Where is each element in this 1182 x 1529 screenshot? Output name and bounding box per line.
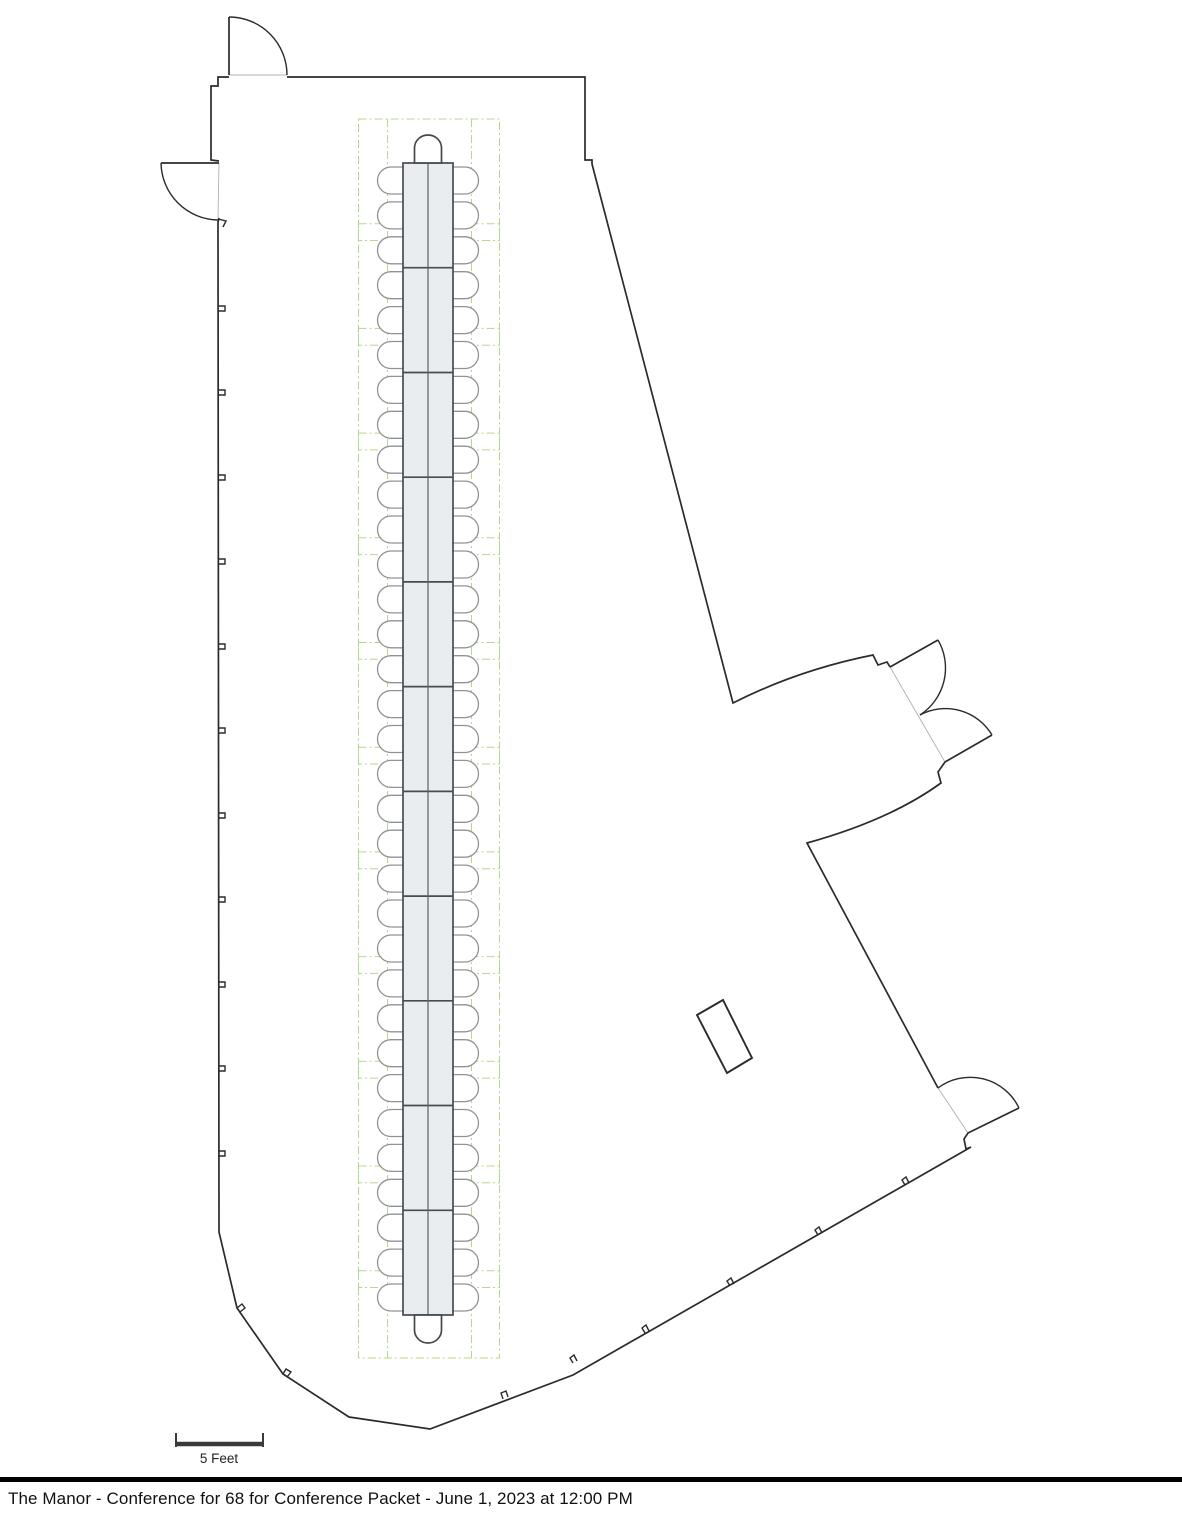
column [697, 1000, 752, 1073]
room-wall [218, 218, 971, 1429]
door-opening-line [938, 1088, 968, 1133]
door-opening-line [218, 163, 219, 218]
door-leaf [968, 1108, 1019, 1133]
door-opening-line [890, 667, 945, 762]
door-swing-arc [938, 1077, 1019, 1108]
door-leaf [945, 735, 992, 762]
wall-tick [218, 306, 225, 311]
title-bar: The Manor - Conference for 68 for Confer… [0, 1477, 1182, 1509]
door-swing-arc [920, 709, 992, 735]
wall-tick [570, 1355, 577, 1363]
column-obstruction [697, 1000, 752, 1073]
scale-bar-label: 5 Feet [200, 1451, 239, 1466]
wall-tick [218, 390, 225, 395]
room-wall [211, 77, 229, 161]
scale-bar: 5 Feet [176, 1433, 263, 1466]
door-swing-arc [920, 640, 946, 715]
door-swings [161, 17, 1019, 1133]
floor-plan-drawing: 5 Feet [0, 0, 1182, 1477]
wall-tick [501, 1391, 508, 1399]
conference-table [403, 163, 453, 1315]
end-chair [415, 135, 442, 163]
door-swing-arc [161, 163, 218, 220]
door-openings [218, 75, 968, 1133]
floor-plan-page: 5 Feet The Manor - Conference for 68 for… [0, 0, 1182, 1529]
room-walls [211, 77, 971, 1429]
drawing-title: The Manor - Conference for 68 for Confer… [0, 1482, 1182, 1509]
wall-ticks [218, 219, 909, 1399]
room-wall [807, 762, 945, 1088]
end-chair [415, 1315, 442, 1343]
door-swing-arc [229, 17, 287, 75]
door-leaf [890, 640, 938, 667]
